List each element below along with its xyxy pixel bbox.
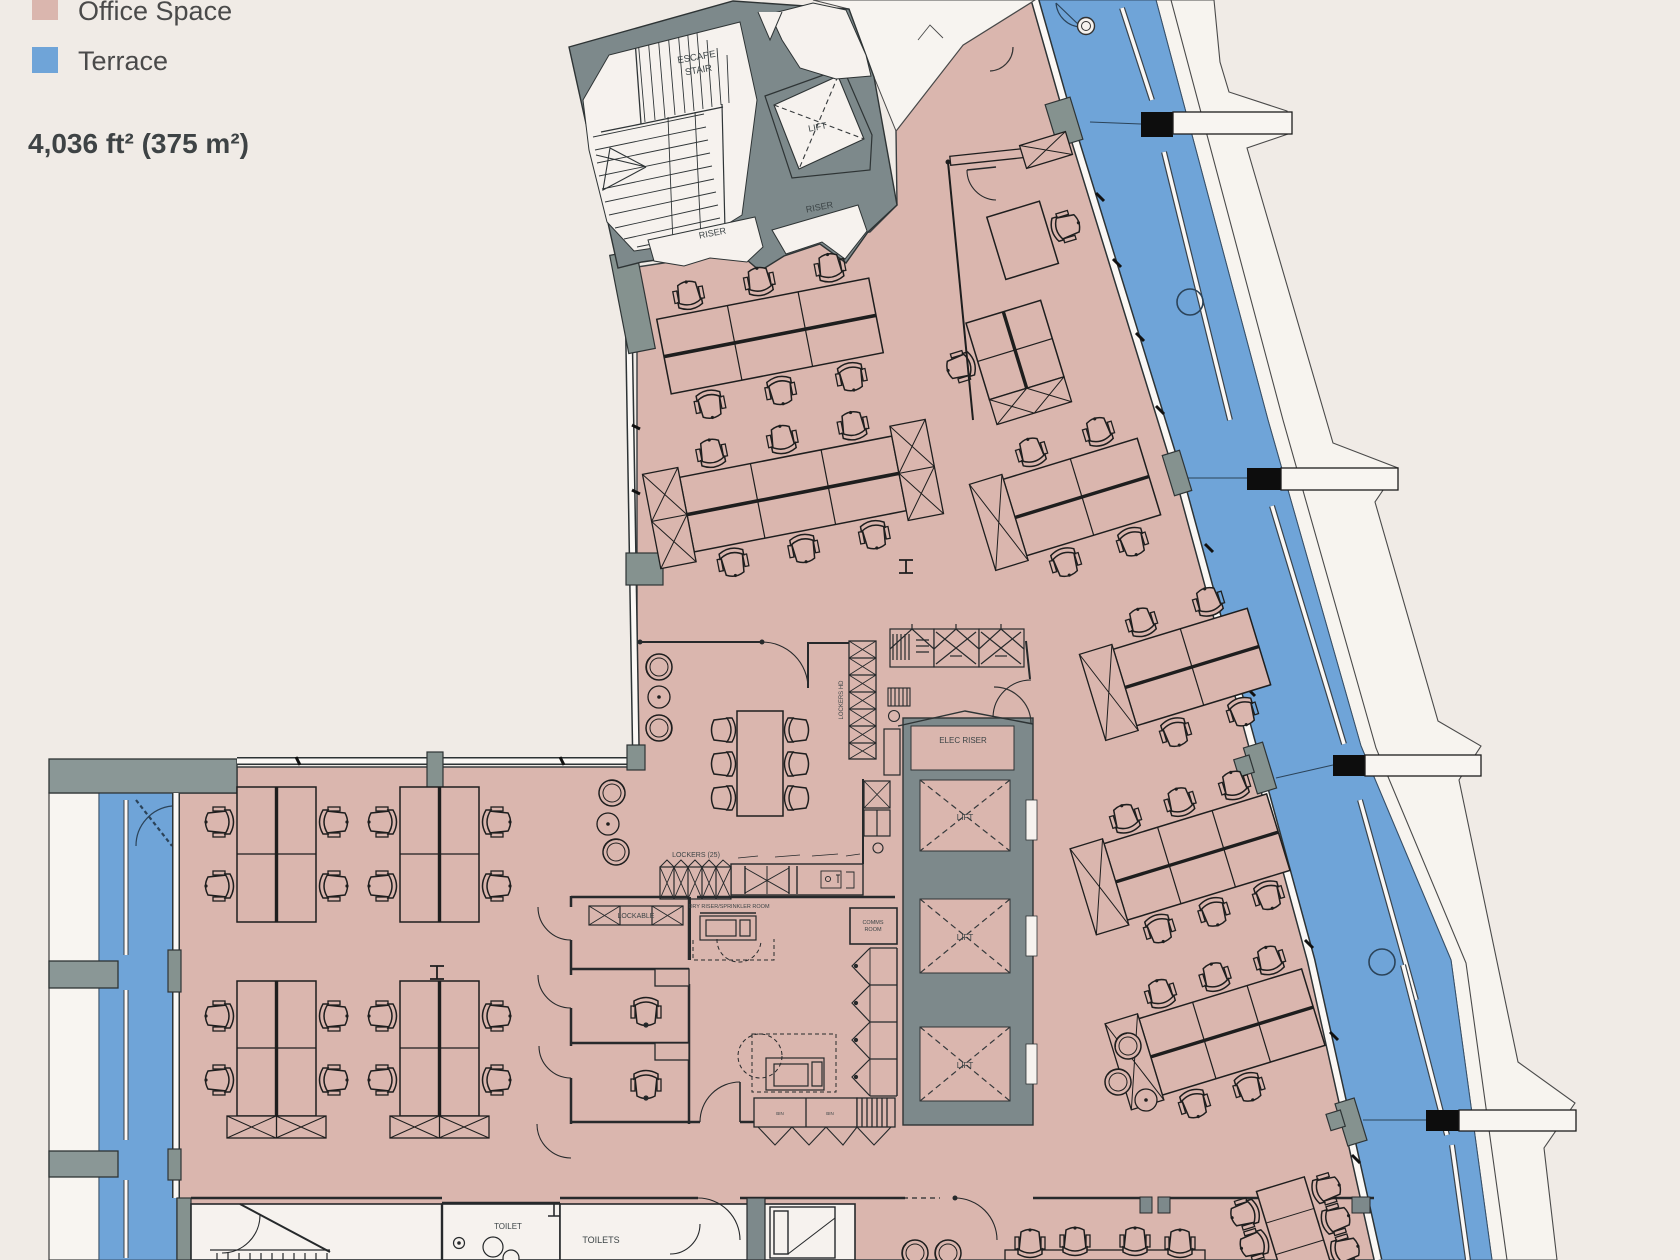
svg-text:BIN: BIN bbox=[826, 1111, 834, 1116]
svg-text:LIFT: LIFT bbox=[957, 813, 974, 822]
svg-text:LIFT: LIFT bbox=[957, 933, 974, 942]
svg-text:TOILET: TOILET bbox=[494, 1222, 522, 1231]
svg-text:ROOM: ROOM bbox=[864, 927, 882, 933]
svg-text:ELEC RISER: ELEC RISER bbox=[939, 736, 987, 745]
svg-text:Terrace: Terrace bbox=[78, 46, 168, 76]
svg-text:DRY RISER/SPRINKLER ROOM: DRY RISER/SPRINKLER ROOM bbox=[688, 904, 770, 910]
svg-text:LOCKERS HD: LOCKERS HD bbox=[839, 680, 845, 720]
svg-text:LOCKERS (25): LOCKERS (25) bbox=[672, 852, 720, 859]
svg-text:Office Space: Office Space bbox=[78, 0, 232, 26]
svg-text:TOILETS: TOILETS bbox=[582, 1235, 619, 1245]
svg-text:COMMS: COMMS bbox=[862, 920, 883, 926]
svg-text:4,036 ft² (375 m²): 4,036 ft² (375 m²) bbox=[28, 128, 249, 159]
svg-text:LIFT: LIFT bbox=[957, 1061, 974, 1070]
svg-text:LOCKABLE: LOCKABLE bbox=[618, 913, 655, 920]
svg-text:BIN: BIN bbox=[776, 1111, 784, 1116]
